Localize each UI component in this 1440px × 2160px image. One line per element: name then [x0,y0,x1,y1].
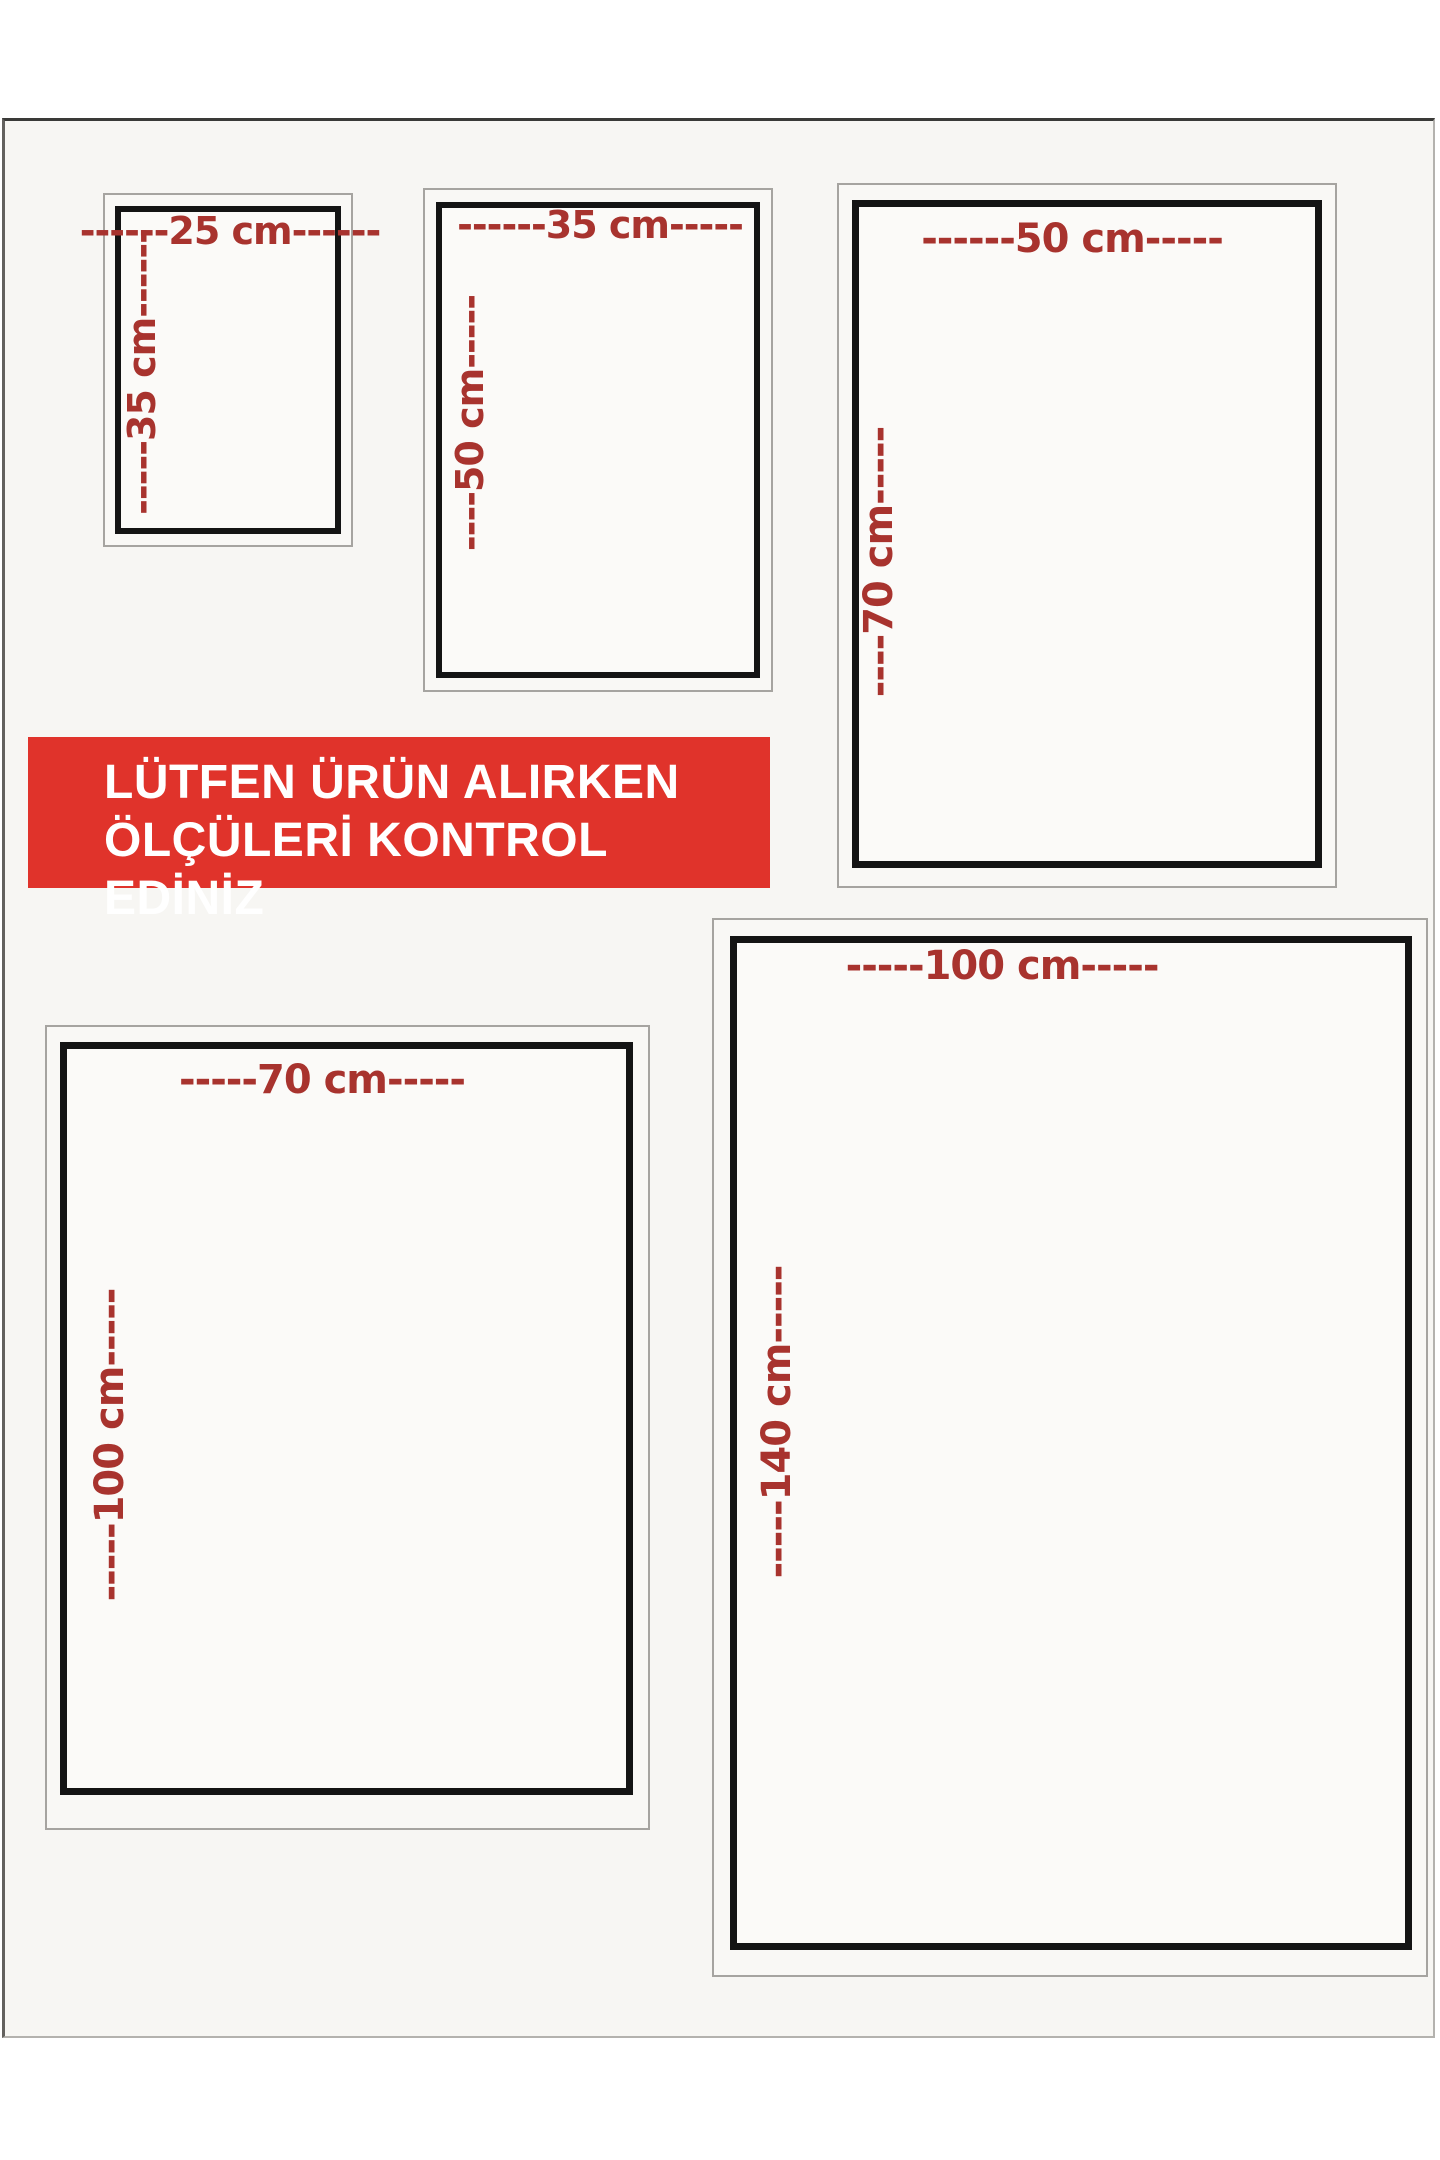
size-box-70x100-inner [60,1042,633,1795]
width-label-35cm: ------35 cm----- [457,203,743,247]
size-box-100x140-inner [730,936,1412,1950]
width-label-70cm: -----70 cm----- [179,1057,465,1103]
size-box-25x35: ------25 cm------ -----35 cm------ [103,193,353,547]
width-label-100cm: -----100 cm----- [846,943,1159,989]
width-label-50cm: ------50 cm----- [921,216,1223,262]
notice-line-1: LÜTFEN ÜRÜN ALIRKEN [104,754,770,812]
size-box-70x100: -----70 cm----- -----100 cm----- [45,1025,650,1830]
notice-banner: LÜTFEN ÜRÜN ALIRKEN ÖLÇÜLERİ KONTROL EDİ… [28,737,770,888]
size-guide-image: ------25 cm------ -----35 cm------ -----… [0,0,1440,2160]
height-label-140cm: -----140 cm----- [754,1266,800,1579]
notice-line-2: ÖLÇÜLERİ KONTROL EDİNİZ [104,812,770,928]
size-box-35x50: ------35 cm----- ----50 cm----- [423,188,773,692]
height-label-70cm: ----70 cm----- [856,427,902,697]
size-box-50x70-inner [852,200,1322,868]
size-box-50x70: ------50 cm----- ----70 cm----- [837,183,1337,888]
height-label-50cm: ----50 cm----- [448,295,492,551]
height-label-100cm: -----100 cm----- [87,1289,133,1602]
height-label-35cm: -----35 cm------ [120,229,164,515]
size-box-100x140: -----100 cm----- -----140 cm----- [712,918,1428,1977]
